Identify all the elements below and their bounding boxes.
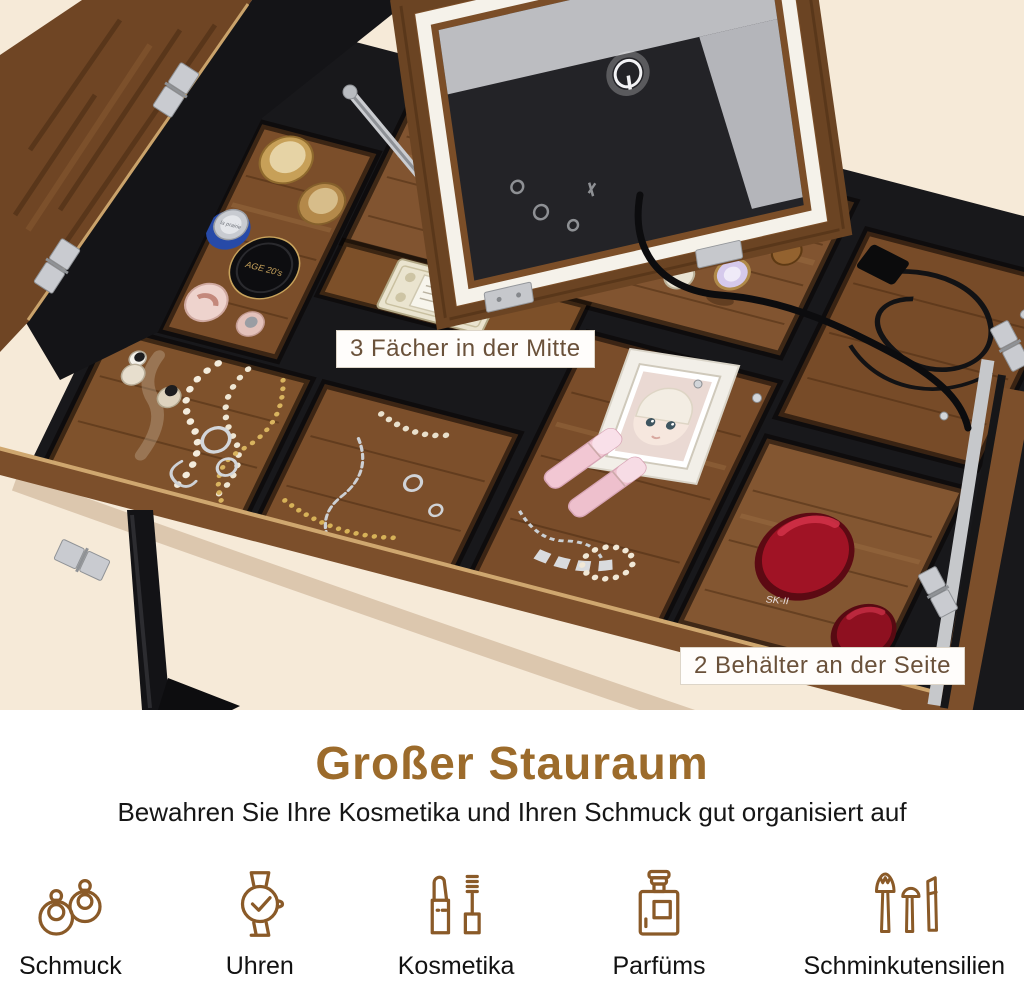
vanity-photo: la prairie AGE 20's: [0, 0, 1024, 710]
feature-jewelry: Schmuck: [19, 864, 122, 981]
feature-label: Kosmetika: [398, 952, 515, 981]
feature-makeup-tools: Schminkutensilien: [804, 864, 1006, 981]
feature-label: Parfüms: [612, 952, 705, 981]
svg-text:SK-II: SK-II: [764, 595, 790, 607]
feature-label: Schmuck: [19, 952, 122, 981]
cosmetics-icon: [416, 864, 496, 944]
feature-cosmetics: Kosmetika: [398, 864, 515, 981]
feature-label: Uhren: [226, 952, 294, 981]
watch-icon: [220, 864, 300, 944]
annotation-side-containers: 2 Behälter an der Seite: [680, 647, 965, 685]
earrings-icon: [30, 864, 110, 944]
section-title: Großer Stauraum: [0, 710, 1024, 790]
feature-row: Schmuck Uhren: [19, 864, 1005, 981]
brushes-icon: [864, 864, 944, 944]
info-panel: Großer Stauraum Bewahren Sie Ihre Kosmet…: [0, 710, 1024, 980]
feature-perfumes: Parfüms: [612, 864, 705, 981]
perfume-icon: [619, 864, 699, 944]
feature-label: Schminkutensilien: [804, 952, 1006, 981]
feature-watches: Uhren: [220, 864, 300, 981]
product-image: la prairie AGE 20's: [0, 0, 1024, 980]
section-subtitle: Bewahren Sie Ihre Kosmetika und Ihren Sc…: [0, 797, 1024, 828]
annotation-middle-compartments: 3 Fächer in der Mitte: [336, 330, 595, 368]
